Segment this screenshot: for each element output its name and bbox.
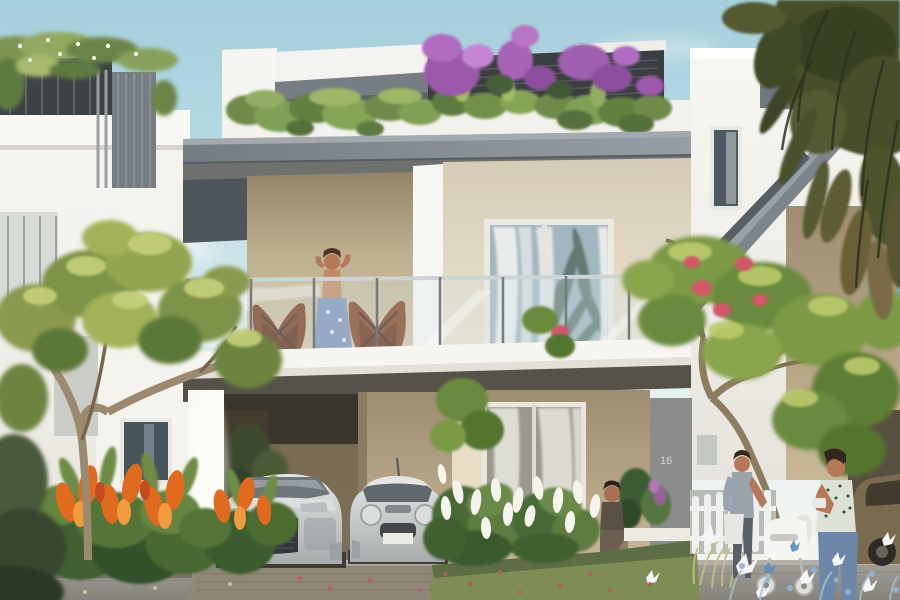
svg-text:16: 16 [660,455,672,467]
